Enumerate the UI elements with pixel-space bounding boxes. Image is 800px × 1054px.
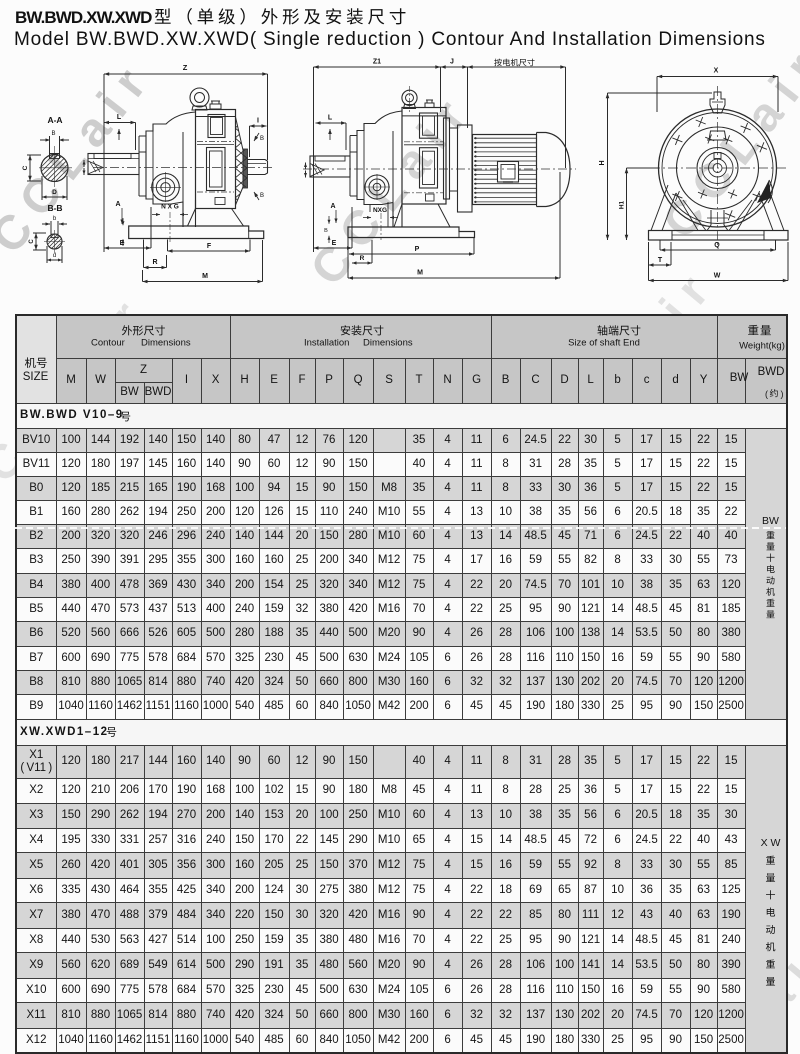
svg-text:d: d	[53, 253, 56, 259]
svg-text:C: C	[29, 239, 35, 244]
svg-text:R: R	[360, 255, 365, 262]
svg-text:F: F	[207, 243, 212, 250]
svg-text:X: X	[714, 68, 719, 75]
svg-text:E: E	[332, 240, 337, 247]
svg-text:A: A	[115, 201, 120, 208]
svg-text:J: J	[450, 59, 454, 66]
svg-text:E: E	[120, 240, 125, 247]
svg-text:B: B	[51, 131, 55, 137]
svg-text:P: P	[415, 246, 420, 253]
svg-text:D: D	[52, 189, 57, 196]
svg-text:M: M	[202, 273, 208, 280]
svg-text:M: M	[417, 270, 423, 277]
svg-text:b: b	[53, 216, 57, 222]
svg-text:B-B: B-B	[47, 203, 62, 213]
svg-text:B: B	[324, 228, 328, 234]
svg-text:NXG: NXG	[373, 207, 387, 214]
svg-text:A-A: A-A	[47, 115, 62, 125]
svg-text:N X G: N X G	[161, 204, 179, 211]
svg-text:C: C	[22, 165, 29, 170]
svg-text:I: I	[257, 118, 259, 125]
svg-text:B: B	[260, 193, 264, 199]
svg-text:L: L	[117, 114, 122, 121]
svg-text:A: A	[330, 203, 335, 210]
svg-text:H1: H1	[619, 200, 626, 209]
svg-text:L: L	[328, 115, 333, 122]
svg-text:T: T	[658, 257, 663, 264]
svg-text:Q: Q	[714, 242, 720, 249]
svg-text:Z: Z	[183, 63, 188, 72]
svg-text:H: H	[599, 160, 606, 165]
svg-text:W: W	[714, 273, 721, 280]
svg-text:Z1: Z1	[373, 59, 381, 66]
svg-text:R: R	[152, 259, 157, 266]
svg-text:B: B	[260, 136, 264, 142]
